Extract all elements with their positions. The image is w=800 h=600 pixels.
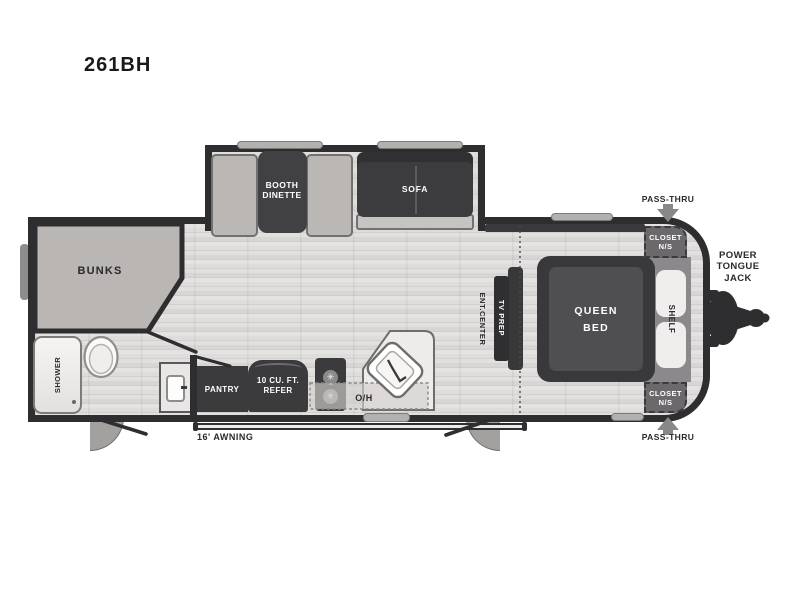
shelf-label: SHELF [665, 289, 677, 349]
cooktop: ✳ ✳ [315, 358, 346, 411]
bedroom-window-top [551, 213, 613, 221]
overhead-label: O/H [344, 393, 384, 404]
closet-front-top: CLOSET N/S [644, 226, 687, 258]
pass-thru-bottom-label: PASS-THRU [625, 432, 711, 443]
sofa-label: SOFA [385, 183, 445, 195]
refer-line2: REFER [263, 386, 292, 396]
floorplan-canvas: 261BH CLOSET N/S CLOSET N/S ✳ ✳ [0, 0, 800, 600]
queen-line1: QUEEN [574, 303, 617, 320]
jack-line1: POWER [719, 250, 757, 261]
bathroom-faucet-icon [181, 386, 187, 389]
refrigerator-front-arc [254, 363, 302, 373]
closet-top-label-line1: CLOSET [649, 233, 682, 242]
queen-line2: BED [583, 320, 609, 337]
dinette-bench-right [306, 154, 353, 237]
booth-dinette-label: BOOTH DINETTE [252, 178, 312, 202]
dinette-bench-left [211, 154, 258, 237]
closet-bottom-label-line1: CLOSET [649, 389, 682, 398]
closet-top-label-line2: N/S [659, 242, 673, 251]
power-tongue-jack-graphic [706, 290, 770, 347]
slide-window-right [377, 141, 463, 149]
shower-label: SHOWER [51, 340, 63, 410]
bedroom-overhead-cabinet [485, 224, 645, 232]
awning-bar [195, 423, 525, 430]
awning-endcap-right [522, 422, 527, 431]
bedroom-window-bottom [611, 413, 644, 421]
entertainment-center [508, 267, 523, 370]
booth-dinette-line1: BOOTH [266, 180, 299, 190]
awning-endcap-left [193, 422, 198, 431]
refer-line1: 10 CU. FT. [257, 376, 299, 386]
entry-door-swing-left [90, 417, 124, 451]
jack-line2: TONGUE [717, 261, 760, 272]
pantry-label: PANTRY [192, 384, 252, 395]
refer-label: 10 CU. FT. REFER [247, 375, 309, 397]
model-number: 261BH [84, 54, 151, 77]
jack-line3: JACK [724, 273, 751, 284]
burner-icon: ✳ [323, 370, 338, 385]
closet-front-bottom: CLOSET N/S [644, 382, 687, 413]
power-tongue-jack-label: POWER TONGUE JACK [707, 249, 769, 285]
closet-bottom-label-line2: N/S [659, 398, 673, 407]
bunks-label: BUNKS [60, 265, 140, 278]
burner-icon: ✳ [323, 389, 338, 404]
bathroom-vanity [159, 362, 192, 413]
slide-window-left [237, 141, 323, 149]
kitchen-window-bottom [363, 413, 410, 422]
awning-label: 16' AWNING [197, 431, 287, 443]
pass-thru-top-label: PASS-THRU [625, 194, 711, 205]
shower-drain-icon [72, 400, 76, 404]
tv-prep-label: TV PREP [496, 283, 508, 353]
ent-center-label: ENT.CENTER [477, 274, 489, 364]
booth-dinette-line2: DINETTE [262, 190, 301, 200]
queen-bed-label: QUEEN BED [556, 303, 636, 337]
